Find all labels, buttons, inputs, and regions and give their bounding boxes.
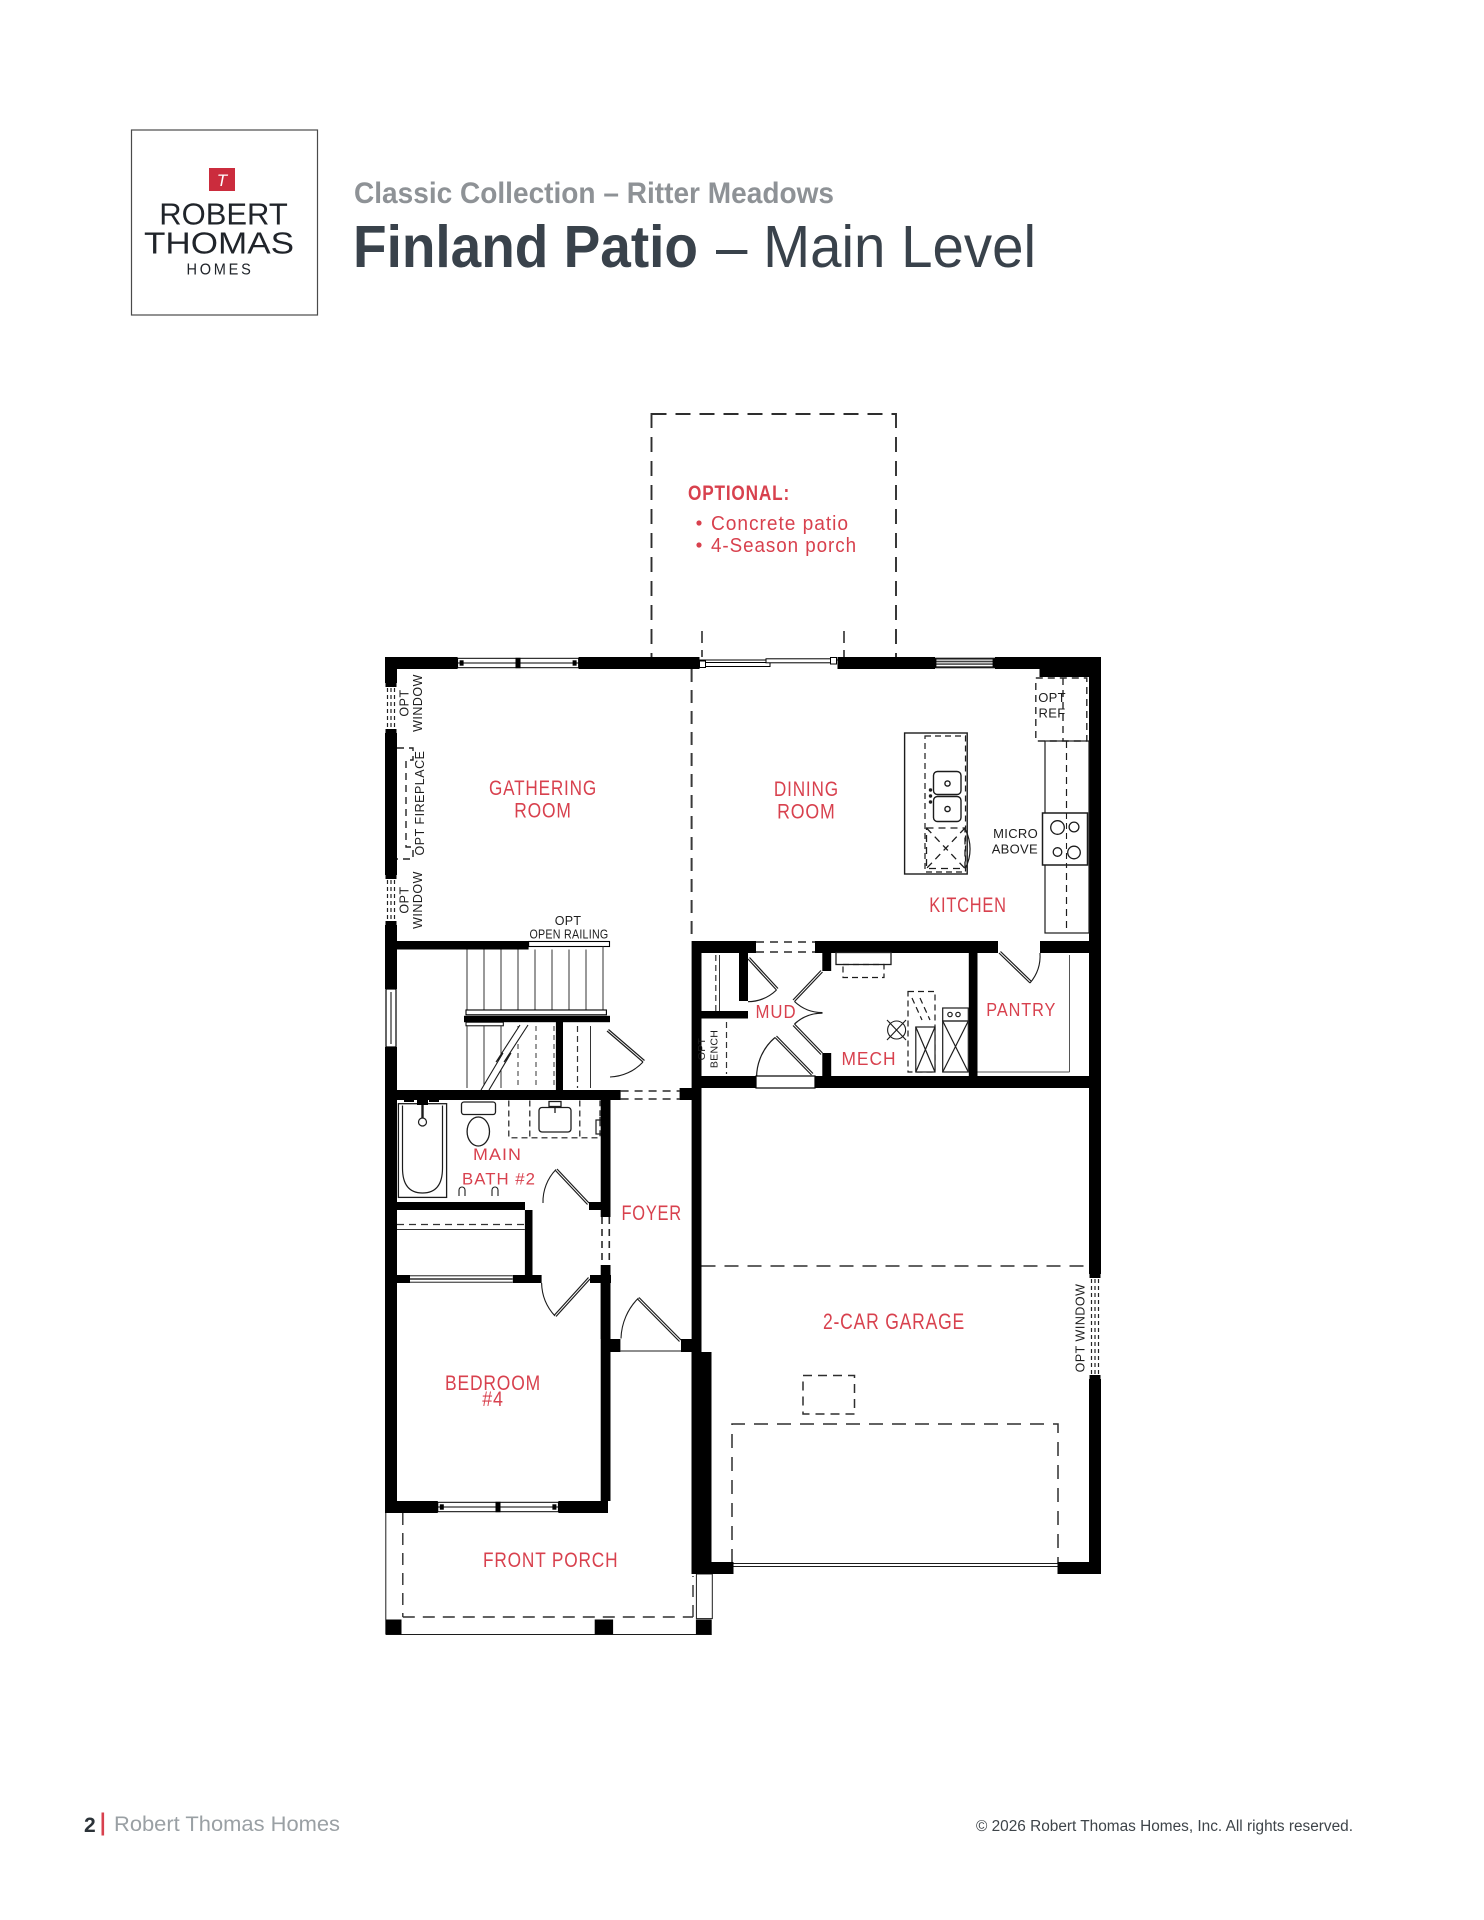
svg-text:OPT FIREPLACE: OPT FIREPLACE [413,751,427,856]
svg-text:ROOM: ROOM [514,800,572,823]
svg-text:KITCHEN: KITCHEN [929,894,1007,917]
svg-text:OPT WINDOW: OPT WINDOW [1074,1284,1088,1373]
svg-text:#4: #4 [482,1388,504,1411]
svg-text:– Main Level: – Main Level [716,214,1036,280]
svg-text:HOMES: HOMES [187,262,254,279]
svg-text:PANTRY: PANTRY [986,1000,1056,1020]
svg-text:ABOVE: ABOVE [992,842,1038,857]
svg-text:OPTIONAL:: OPTIONAL: [688,482,790,505]
svg-text:OPT: OPT [398,689,412,716]
svg-text:REF: REF [1039,706,1066,721]
svg-text:MICRO: MICRO [993,826,1038,841]
svg-text:GATHERING: GATHERING [489,777,597,800]
svg-text:OPT: OPT [398,886,412,913]
svg-text:2: 2 [84,1814,96,1837]
svg-text:MECH: MECH [842,1049,897,1069]
svg-text:DINING: DINING [774,778,839,801]
svg-text:Robert Thomas Homes: Robert Thomas Homes [114,1813,340,1836]
svg-text:WINDOW: WINDOW [411,674,425,732]
svg-text:4-Season porch: 4-Season porch [711,535,857,557]
svg-text:MUD: MUD [756,1002,797,1022]
svg-text:BATH #2: BATH #2 [462,1171,536,1189]
svg-text:BENCH: BENCH [709,1030,721,1068]
svg-text:© 2026 Robert Thomas Homes, In: © 2026 Robert Thomas Homes, Inc. All rig… [976,1818,1353,1835]
svg-text:Finland Patio: Finland Patio [353,214,698,280]
svg-text:OPT: OPT [696,1037,708,1060]
svg-text:WINDOW: WINDOW [411,871,425,929]
svg-text:THOMAS: THOMAS [144,226,294,261]
svg-text:OPEN RAILING: OPEN RAILING [530,928,609,942]
svg-text:Classic Collection – Ritter Me: Classic Collection – Ritter Meadows [354,177,834,210]
svg-text:FRONT PORCH: FRONT PORCH [483,1549,618,1572]
svg-text:Concrete patio: Concrete patio [711,513,849,535]
svg-text:OPT: OPT [555,914,582,928]
svg-text:MAIN: MAIN [473,1146,522,1164]
svg-text:2-CAR GARAGE: 2-CAR GARAGE [823,1309,965,1334]
svg-text:OPT: OPT [1038,690,1066,705]
svg-text:T: T [217,171,229,190]
svg-text:FOYER: FOYER [621,1202,682,1225]
svg-text:ROOM: ROOM [777,801,836,824]
